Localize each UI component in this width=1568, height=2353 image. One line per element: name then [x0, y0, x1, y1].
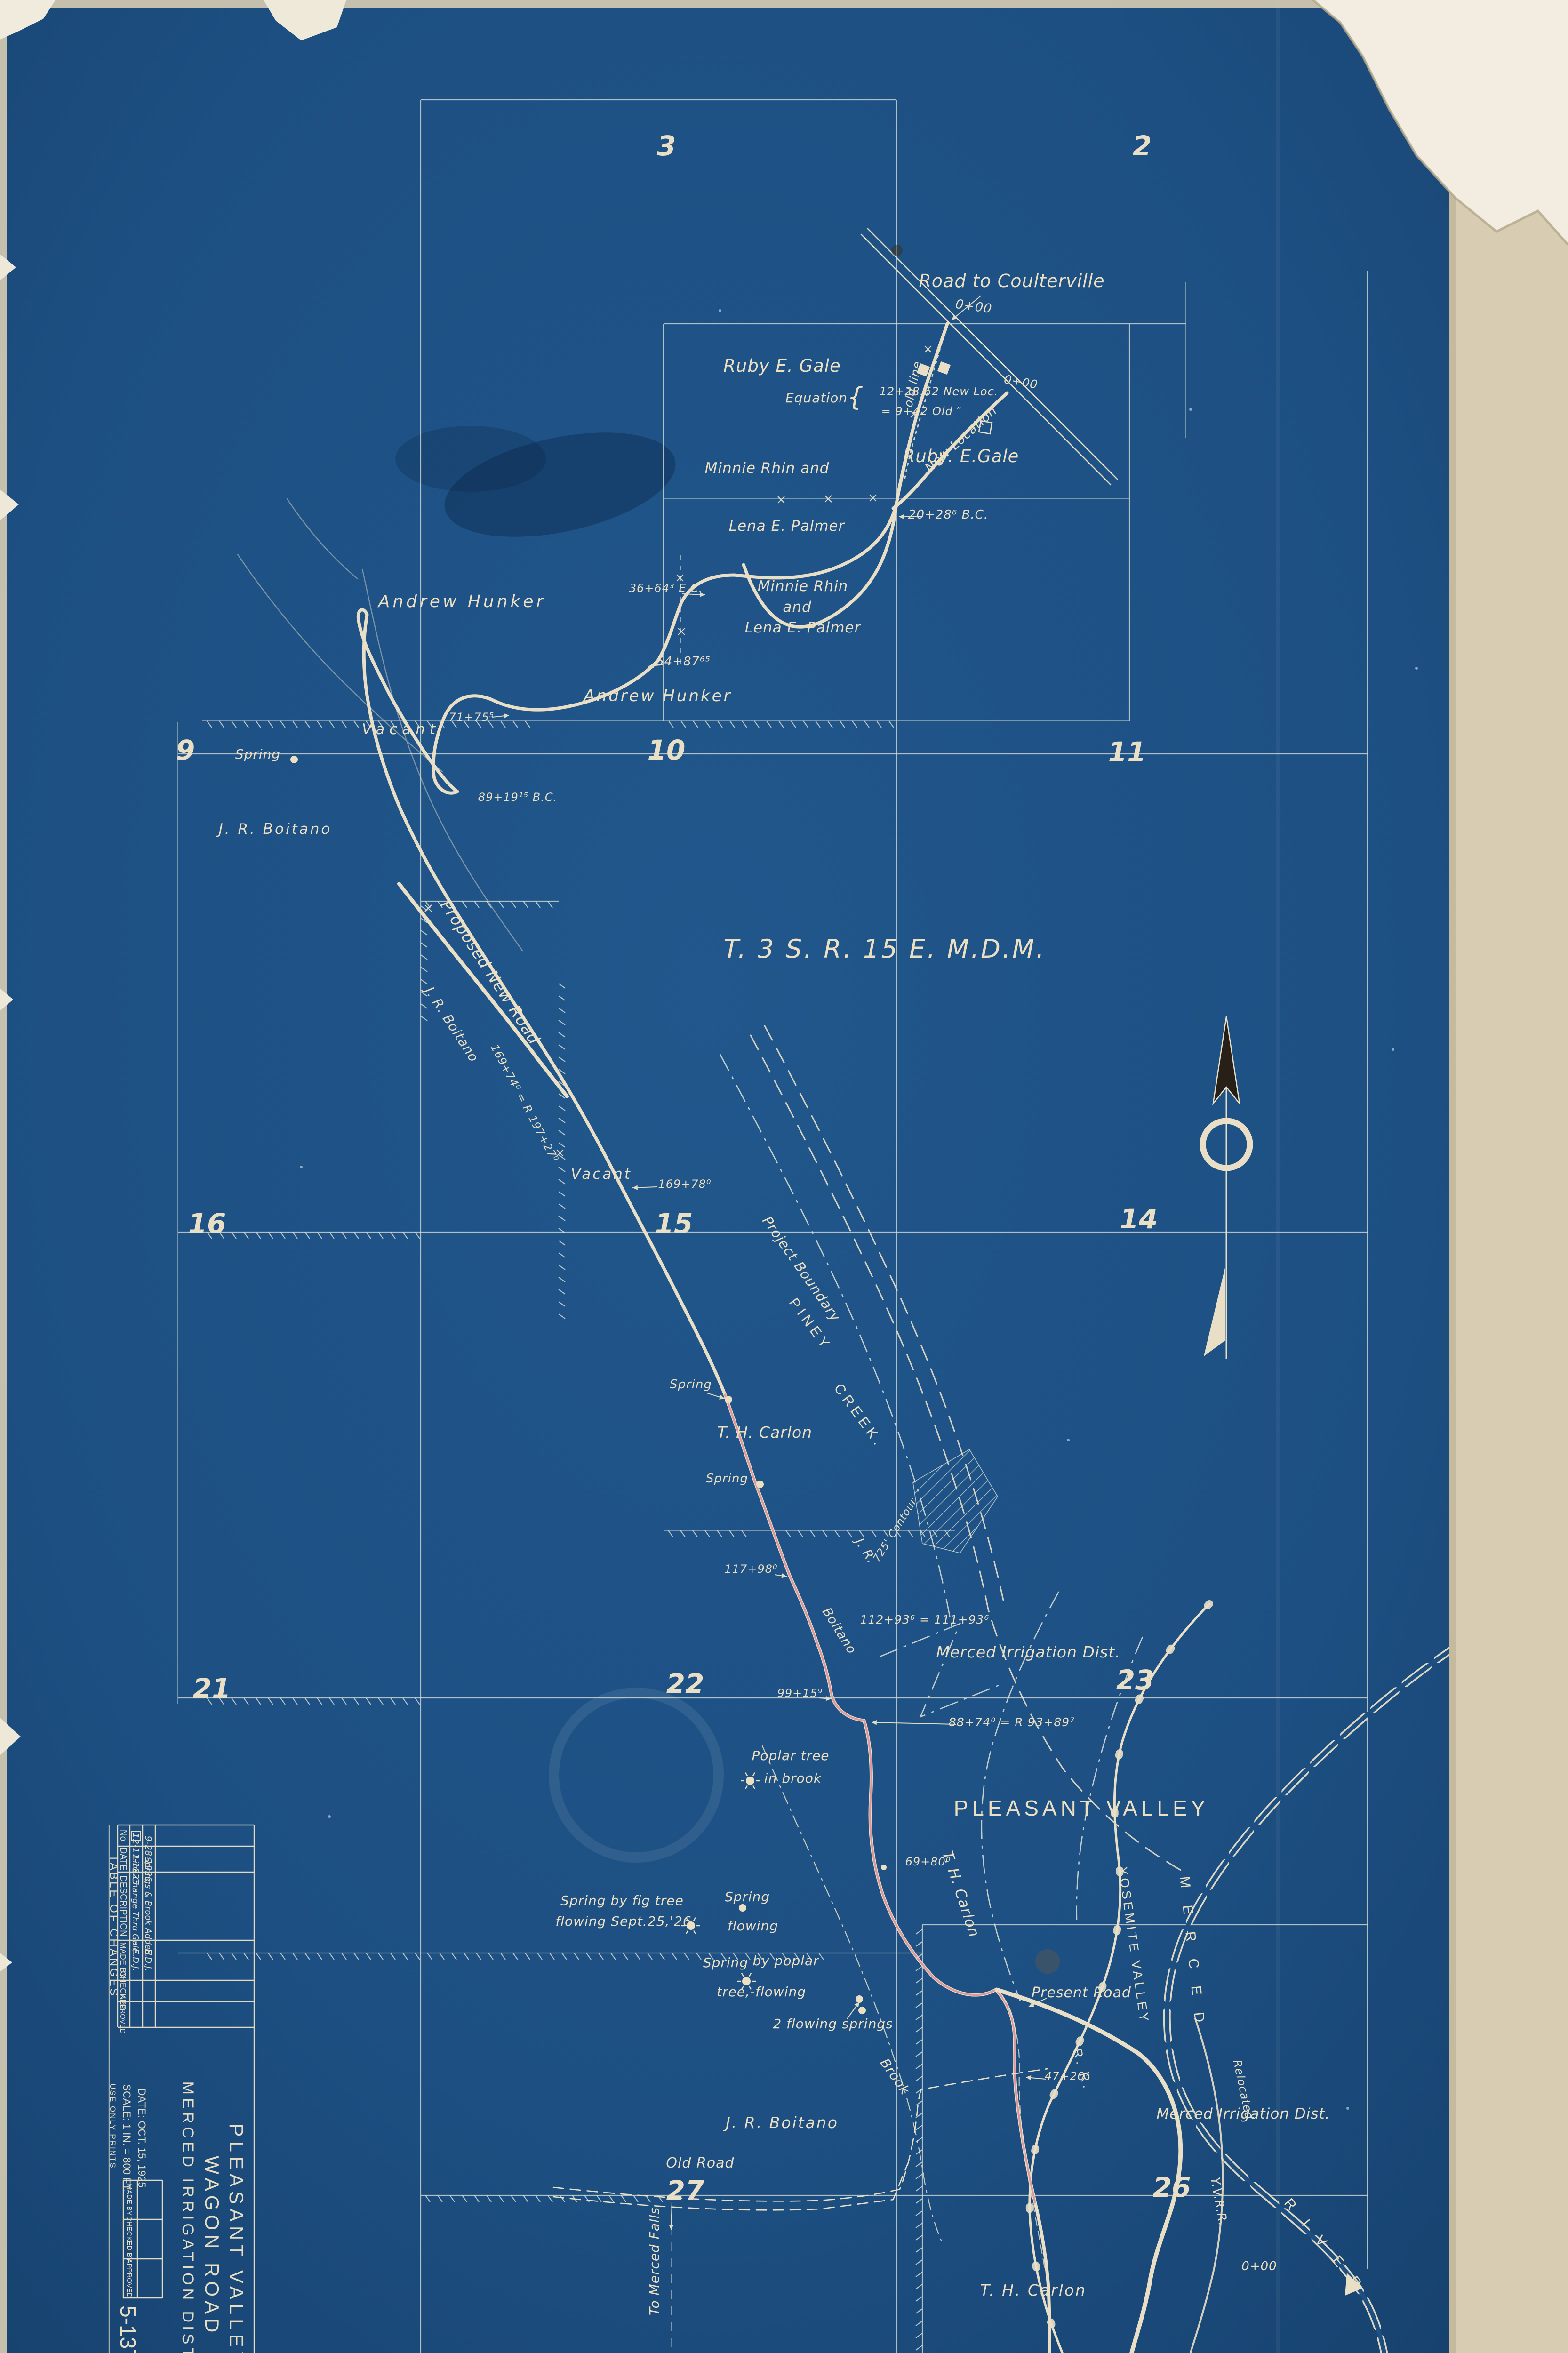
two-springs-label: 2 flowing springs [773, 2016, 893, 2032]
table-of-changes-caption: TABLE OF CHANGES [107, 1855, 120, 1998]
station-5487: 54+87⁶⁵ [656, 655, 711, 669]
station-0-00-c: 0+00 [1241, 2259, 1277, 2273]
vacant-1: Vacant [362, 721, 440, 738]
station-16978: 169+78⁰ [658, 1177, 711, 1191]
spring-dot [739, 1904, 746, 1912]
minnie-and-2: and [783, 599, 811, 616]
section-number-2: 2 [1133, 130, 1152, 162]
merced-dist-1: Merced Irrigation Dist. [936, 1643, 1120, 1661]
stamp-approved: APPROVED [125, 2258, 133, 2298]
blueprint-sheet: Road to Coulterville0+000+00old lineNew … [0, 0, 1568, 2353]
changes-col-no: No [118, 1830, 128, 1841]
station-eq-112: 112+93⁶ = 111+93⁶ [860, 1613, 990, 1626]
poplar-tree-1: Poplar tree [752, 1748, 829, 1763]
road-to-coulterville-label: Road to Coulterville [919, 271, 1104, 291]
section-number-26: 26 [1153, 2171, 1191, 2203]
edge-note: USE ONLY PRINTS [108, 2083, 117, 2169]
section-number-9: 9 [176, 734, 195, 766]
tree-symbol [742, 1977, 751, 1985]
map-canvas: Road to Coulterville0+000+00old lineNew … [0, 0, 1568, 2353]
sheet-title-line-2: WAGON ROAD [201, 2156, 223, 2337]
paper-speck [1415, 667, 1418, 670]
equation-brace: { [847, 382, 864, 412]
stamp-made-by: MADE BY [125, 2184, 133, 2216]
tree-symbol [687, 1921, 695, 1930]
stamp-checked-by: CHECKED BY [125, 2216, 133, 2262]
section-number-11: 11 [1108, 736, 1146, 768]
station-8919-bc: 89+19¹⁵ B.C. [478, 791, 558, 804]
revision-1-description: Line Change Thru Gale. [130, 1856, 140, 1956]
spring-label-1: Spring [235, 746, 280, 762]
revision-2-made-by: E.D.J. [143, 1949, 153, 1971]
stain-spot [891, 245, 903, 256]
andrew-hunker-2: Andrew Hunker [583, 687, 732, 705]
section-number-23: 23 [1116, 1664, 1154, 1696]
section-number-21: 21 [193, 1673, 231, 1705]
equation-new-loc: 12+28.62 New Loc. [880, 385, 999, 398]
spring-dot [725, 1396, 732, 1403]
stain-spot [1035, 1949, 1060, 1974]
andrew-hunker-1: Andrew Hunker [377, 592, 546, 611]
spring-label-3: Spring [670, 1377, 712, 1392]
pleasant-valley-label: PLEASANT VALLEY [954, 1796, 1209, 1820]
changes-col-approved: APPROVED [119, 1994, 127, 2034]
station-6980: 69+80⁰ [905, 1855, 951, 1868]
station-6980-marker [881, 1865, 887, 1870]
jr-boitano-2: J. R. Boitano [723, 2113, 839, 2132]
station-eq-8874: 88+74⁰ = R 93+89⁷ [949, 1715, 1075, 1729]
th-carlon-2: T. H. Carlon [980, 2281, 1087, 2299]
sheet-title-line-3: MERCED IRRIGATION DISTRICT [179, 2081, 197, 2353]
spring-dot [290, 756, 298, 763]
station-3664-ec: 36+64³ E.C. [629, 582, 703, 595]
spring-dot [856, 1995, 863, 2003]
township-label: T. 3 S. R. 15 E. M.D.M. [723, 934, 1046, 964]
fold-crease [1276, 0, 1280, 2353]
spring-dot [858, 2007, 866, 2014]
revision-2-description: Springs & Brook Added [143, 1857, 153, 1955]
spring-fig-1: Spring by fig tree [560, 1893, 684, 1908]
section-number-10: 10 [648, 734, 686, 766]
station-4720: 47+20⁷ [1045, 2070, 1090, 2083]
th-carlon-1: T. H. Carlon [717, 1423, 812, 1441]
paper-speck [719, 309, 721, 312]
paper-speck [328, 1815, 331, 1818]
vacant-2: Vacant [571, 1166, 632, 1183]
revision-1-made-by: E.D.J. [130, 1949, 140, 1971]
paper-edge-left [0, 0, 7, 2353]
drawing-number: 5-137 [116, 2305, 140, 2353]
spring-label-4: Spring [706, 1472, 748, 1486]
lena-palmer-2: Lena E. Palmer [745, 619, 862, 636]
station-7175: 71+75⁵ [449, 711, 495, 724]
spring-fig-2: flowing Sept.25,'26. [555, 1913, 696, 1929]
poplar-tree-2: in brook [764, 1770, 822, 1786]
section-number-15: 15 [655, 1208, 693, 1240]
paper-speck [300, 1166, 303, 1168]
paper-speck [1392, 1048, 1394, 1051]
lena-palmer-1: Lena E. Palmer [729, 518, 846, 535]
spring-flowing-2: flowing [728, 1918, 778, 1934]
equation-old: = 9+42 Old ″ [881, 405, 962, 418]
section-number-22: 22 [666, 1668, 704, 1700]
paper-edge-right [1449, 0, 1568, 2353]
section-number-16: 16 [188, 1208, 226, 1240]
old-road-label: Old Road [666, 2155, 734, 2171]
spring-flowing-1: Spring [725, 1889, 770, 1905]
spring-poplar-1: Spring [703, 1955, 748, 1970]
paper-speck [1346, 2107, 1349, 2110]
section-number-3: 3 [657, 130, 676, 162]
minnie-rhin-1: Minnie Rhin and [705, 460, 830, 477]
date-label: DATE: OCT. 15, 1925 [136, 2088, 148, 2187]
to-merced-falls-label: To Merced Falls [647, 2207, 662, 2315]
minnie-rhin-2: Minnie Rhin [758, 578, 848, 595]
tree-symbol [746, 1777, 754, 1785]
ruby-gale-2: Ruby. E.Gale [903, 446, 1019, 466]
jr-boitano-1: J. R. Boitano [216, 821, 332, 838]
spring-poplar-3: tree,-flowing [717, 1984, 806, 2000]
station-2028-bc: 20+28⁶ B.C. [908, 508, 988, 522]
paper-speck [1189, 408, 1192, 411]
ink-stain [395, 426, 546, 492]
spring-dot [756, 1481, 764, 1488]
blueprint-background [0, 0, 1568, 2353]
paper-speck [1067, 1439, 1070, 1441]
scale-label: SCALE: 1 IN. = 800 FT. [121, 2084, 133, 2192]
sheet-title-line-1: PLEASANT VALLEY [225, 2124, 248, 2353]
ruby-gale-1: Ruby E. Gale [723, 356, 841, 376]
section-number-14: 14 [1120, 1203, 1158, 1235]
station-11798: 117+98⁰ [724, 1562, 777, 1576]
station-9915: 99+15⁹ [777, 1687, 823, 1700]
equation-word: Equation [785, 390, 848, 406]
spring-poplar-2: by poplar [752, 1953, 819, 1969]
